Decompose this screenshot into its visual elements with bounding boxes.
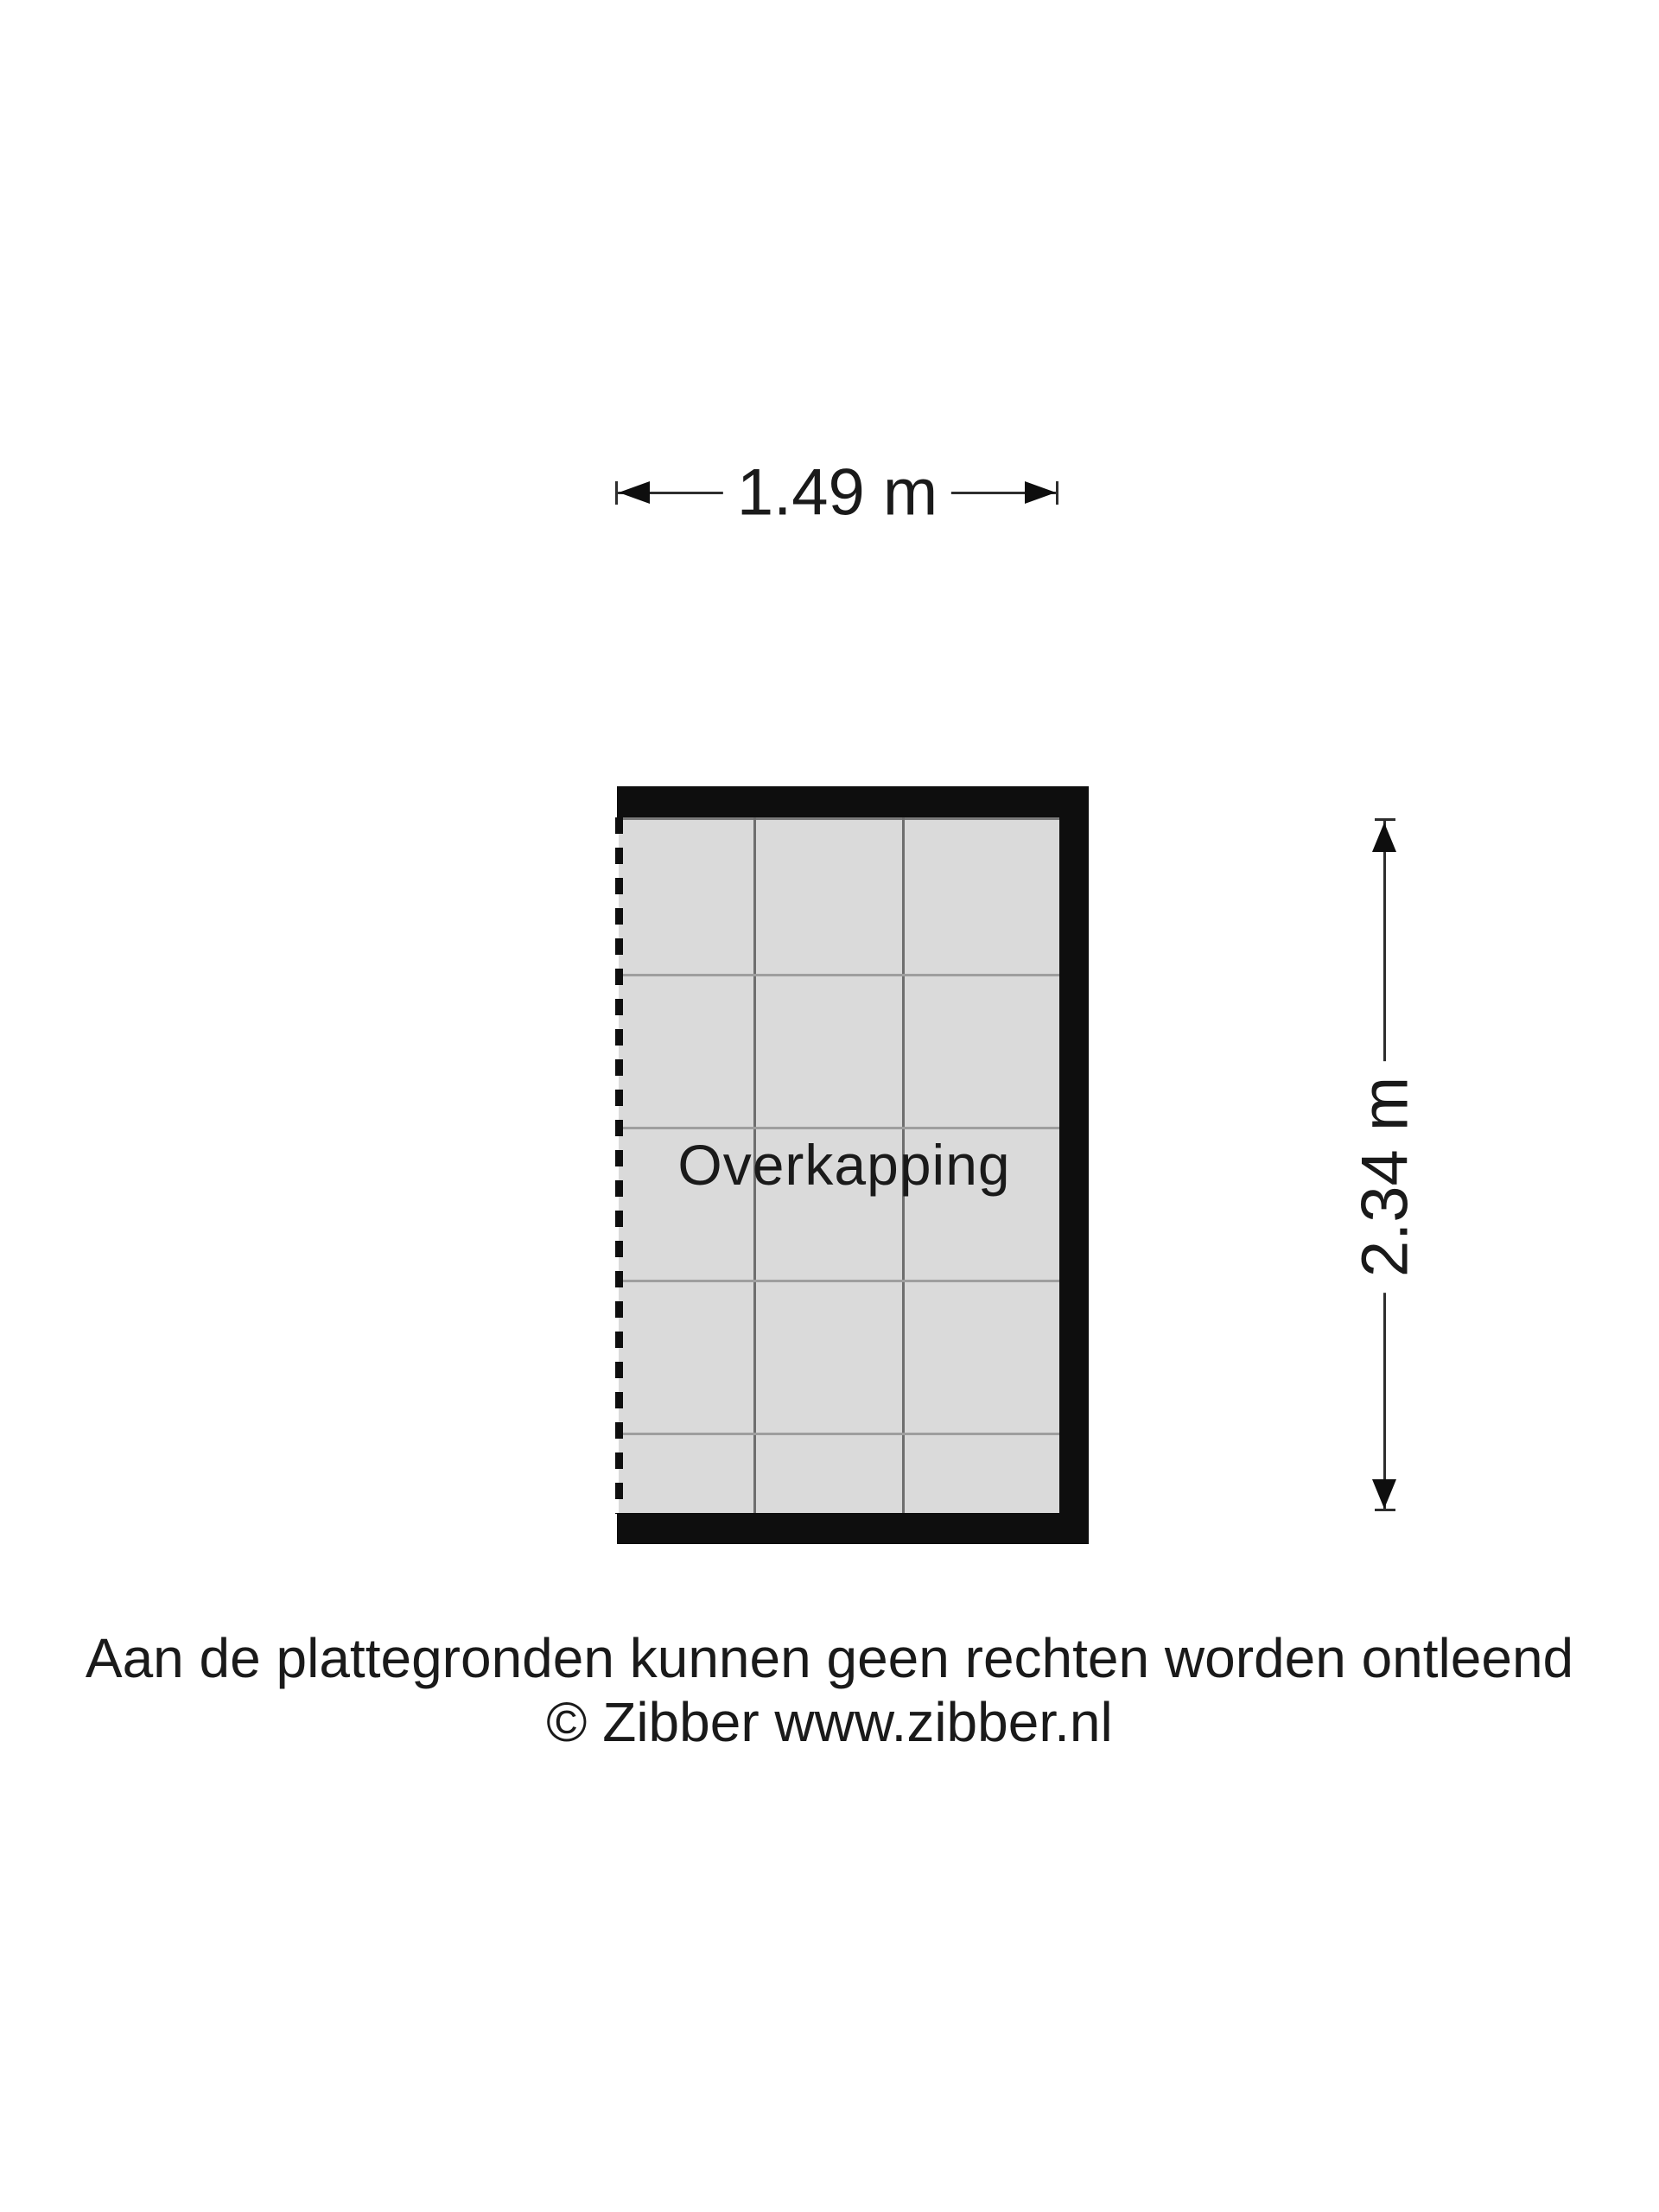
arrow-left-icon xyxy=(619,481,650,504)
height-dimension-top-tick xyxy=(1375,818,1395,821)
tile-grid-horizontal-line xyxy=(619,1280,1059,1282)
arrow-up-icon xyxy=(1372,823,1396,852)
arrow-down-icon xyxy=(1372,1479,1396,1509)
tile-grid-horizontal-line xyxy=(619,1433,1059,1435)
wall-top xyxy=(617,786,1089,817)
disclaimer: Aan de plattegronden kunnen geen rechten… xyxy=(0,1626,1659,1754)
disclaimer-text: Aan de plattegronden kunnen geen rechten… xyxy=(0,1626,1659,1690)
arrow-right-icon xyxy=(1025,481,1056,504)
width-dimension-label: 1.49 m xyxy=(723,455,951,531)
tile-grid-top-line xyxy=(619,817,1059,820)
room-label: Overkapping xyxy=(677,1132,1010,1198)
wall-bottom xyxy=(617,1513,1089,1544)
height-dimension-bottom-tick xyxy=(1375,1509,1395,1511)
height-dimension-label: 2.34 m xyxy=(1348,1061,1423,1293)
open-side-dashed-line xyxy=(615,817,623,1514)
tile-grid-horizontal-line xyxy=(619,974,1059,976)
width-dimension-right-tick xyxy=(1056,481,1058,505)
floorplan-canvas: 1.49 m Overkapping 2.34 m Aan de platteg… xyxy=(0,0,1659,2212)
tile-grid-horizontal-line xyxy=(619,1127,1059,1129)
width-dimension-left-tick xyxy=(615,481,618,505)
wall-right xyxy=(1059,786,1089,1544)
copyright-text: © Zibber www.zibber.nl xyxy=(0,1690,1659,1754)
